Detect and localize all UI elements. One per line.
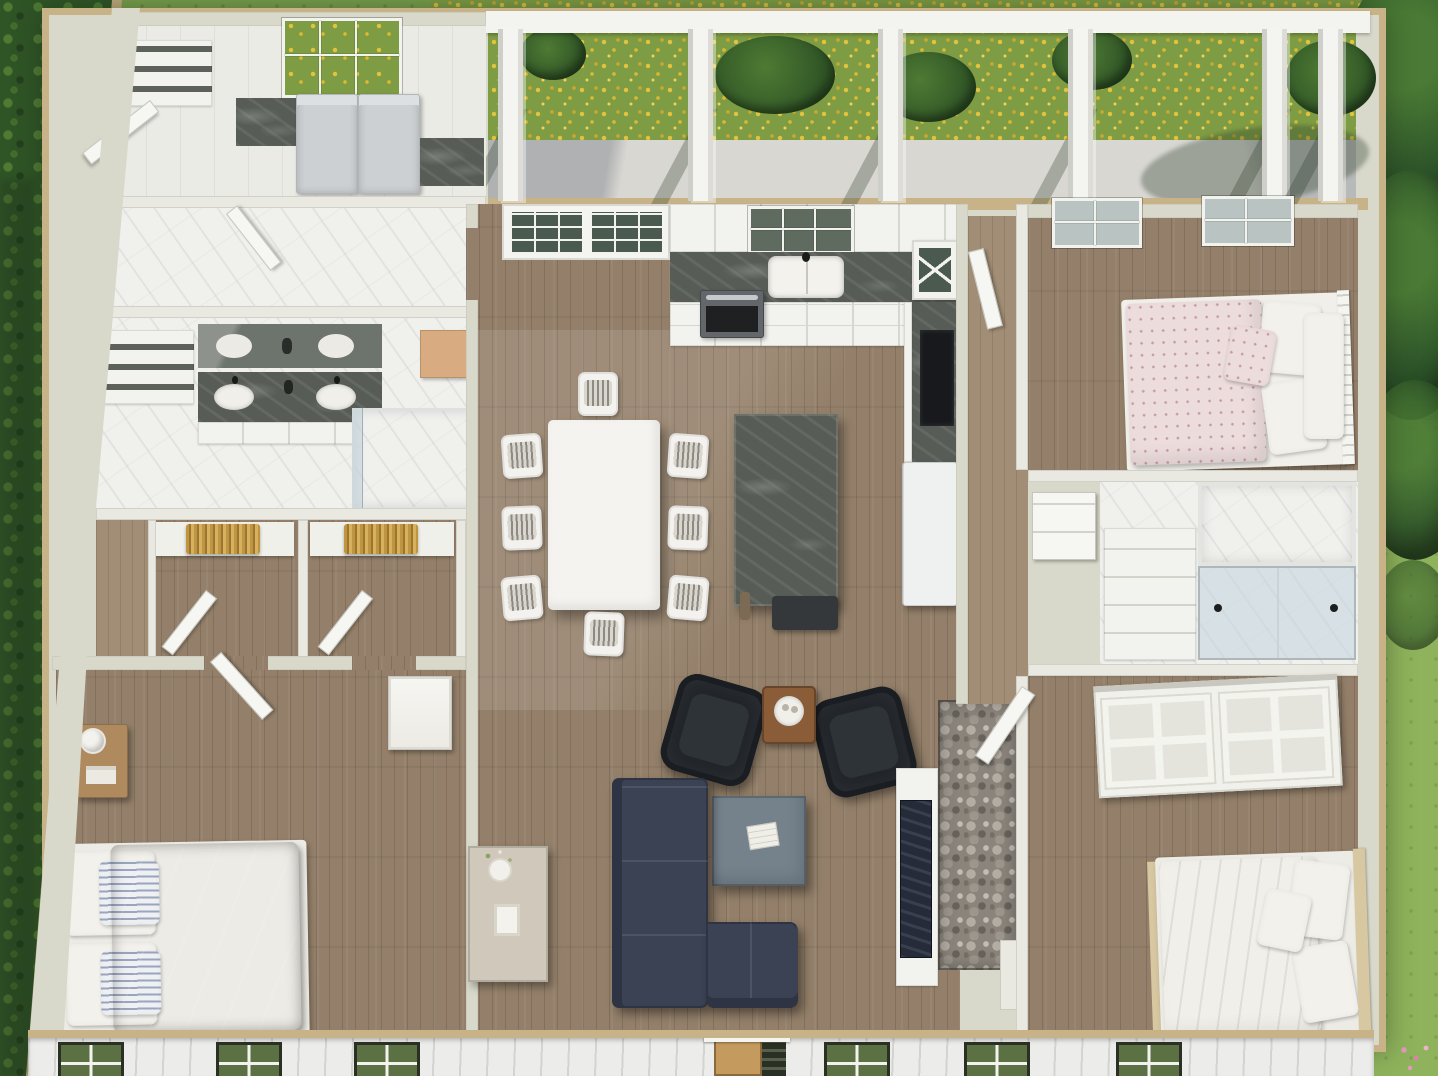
facade-window [1116, 1042, 1182, 1076]
mudroom-floor [96, 208, 478, 308]
bedroom2-window [1202, 196, 1294, 246]
refrigerator [902, 462, 958, 606]
floral-pillow [1223, 324, 1278, 387]
closet-left-wall [148, 520, 156, 660]
floor-plan-scene: 3D aerial dollhouse cutaway rendering of… [0, 0, 1438, 1076]
dining-chair [583, 611, 625, 656]
bath-bottom-wall [96, 508, 478, 520]
x-mullion-glass [919, 248, 951, 292]
linen-closet-door [1032, 492, 1096, 560]
closet-a-hanging-clothes [186, 524, 260, 554]
armchair-cushion [827, 704, 901, 781]
laundry-bottom-wall [112, 196, 486, 208]
sliding-door-panel [1218, 686, 1335, 784]
tv-screen [900, 800, 932, 958]
books [86, 766, 116, 784]
vanity-mirror [198, 324, 382, 368]
faucet-icon [284, 380, 293, 394]
range-top [706, 306, 758, 332]
porch-column [1262, 29, 1287, 201]
bedroom3-closet [1093, 674, 1343, 799]
dryer [358, 94, 420, 194]
glass-seam [1277, 568, 1279, 658]
island-stools [772, 596, 838, 630]
bathroom2-top-wall [1028, 470, 1358, 482]
island-leg [740, 592, 750, 620]
corner-glass-cabinet [912, 240, 958, 300]
range-handle [706, 295, 758, 300]
bathroom2-vanity [1104, 528, 1196, 660]
dining-chair [578, 372, 618, 416]
facade-window [824, 1042, 890, 1076]
closet-b-hanging-clothes [344, 524, 418, 554]
front-facade [28, 1036, 1374, 1076]
kitchen-island [734, 414, 838, 606]
porch-column [498, 29, 523, 201]
door-sidelight [762, 1038, 786, 1076]
eave-line [28, 1030, 1374, 1038]
shower2-glass [1198, 566, 1356, 660]
porch-column [688, 29, 713, 201]
sliding-door-panel [1100, 692, 1217, 790]
french-doors [502, 204, 670, 260]
bath-top-wall [96, 306, 478, 318]
bath-linen-shelves [100, 330, 194, 404]
porch-columns [488, 13, 1356, 205]
glass-handle [1214, 604, 1222, 612]
sectional-sofa [612, 778, 708, 1008]
coffee-table [712, 796, 806, 886]
nightstand [76, 724, 128, 798]
picture-frame [494, 904, 520, 936]
dining-chair [501, 433, 544, 480]
closet-right-wall [456, 520, 466, 660]
table-lamp [82, 730, 104, 752]
armchair-cushion [676, 691, 751, 769]
bedroom2-bed [1117, 290, 1357, 474]
vanity-sink [316, 384, 356, 410]
porch-column [1318, 29, 1343, 201]
primary-bed [50, 836, 309, 1038]
range [700, 290, 764, 338]
faucet-icon [232, 376, 238, 384]
vanity-sink [214, 384, 254, 410]
farmhouse-sink [768, 256, 844, 298]
bedroom3-bed [1147, 846, 1375, 1040]
navy-duvet [110, 842, 301, 1033]
dining-chair [501, 505, 543, 550]
side-table [762, 686, 816, 744]
french-door-glass [510, 212, 582, 254]
primary-bedroom-door [388, 676, 452, 750]
serving-tray [774, 696, 804, 726]
washer [296, 94, 358, 194]
house-shadow [0, 180, 34, 1076]
bedroom3-left-wall [1016, 676, 1028, 1036]
front-door [714, 1040, 762, 1076]
pillow [1304, 313, 1344, 439]
sectional-chaise [706, 922, 798, 1008]
laundry-window [282, 18, 402, 98]
kitchen-right-cabinet-face [904, 302, 912, 462]
dining-chair [666, 574, 710, 621]
faucet-icon [282, 338, 292, 354]
hall-opening [466, 228, 478, 300]
bedroom2-window [1052, 198, 1142, 248]
doorway-gap [352, 656, 416, 670]
laundry-counter-right [420, 138, 484, 186]
mirror-sink-reflection [318, 334, 354, 358]
console-table [468, 846, 548, 982]
facade-window [58, 1042, 124, 1076]
glass-handle [1330, 604, 1338, 612]
facade-window [354, 1042, 420, 1076]
sink-divider [806, 260, 808, 294]
dining-chair [667, 505, 709, 550]
book [746, 822, 779, 850]
porch-column [878, 29, 903, 201]
closet-hall-floor [96, 520, 148, 660]
stone-fireplace [938, 700, 1018, 970]
dining-chair [667, 433, 710, 480]
mirror-sink-reflection [216, 334, 252, 358]
closet-divider-wall [298, 520, 308, 660]
primary-shower [352, 408, 478, 510]
shower-glass [352, 408, 363, 510]
pink-flowers [1396, 1042, 1438, 1076]
shower2-walls [1198, 482, 1356, 566]
bedroom2-left-wall [1016, 204, 1028, 470]
flowers [480, 848, 520, 872]
built-in-oven [920, 330, 954, 426]
floor-sunlight [470, 330, 950, 710]
cup [791, 706, 798, 713]
dining-chair [500, 574, 544, 621]
french-door-glass [590, 212, 662, 254]
faucet-icon [334, 376, 340, 384]
facade-window [964, 1042, 1030, 1076]
faucet-icon [802, 252, 810, 262]
kitchen-window [748, 206, 854, 254]
cup [782, 704, 789, 711]
east-partition-wall [956, 204, 968, 704]
facade-window [216, 1042, 282, 1076]
porch-column [1068, 29, 1093, 201]
laundry-counter-left [236, 98, 296, 146]
dining-table [548, 420, 660, 610]
